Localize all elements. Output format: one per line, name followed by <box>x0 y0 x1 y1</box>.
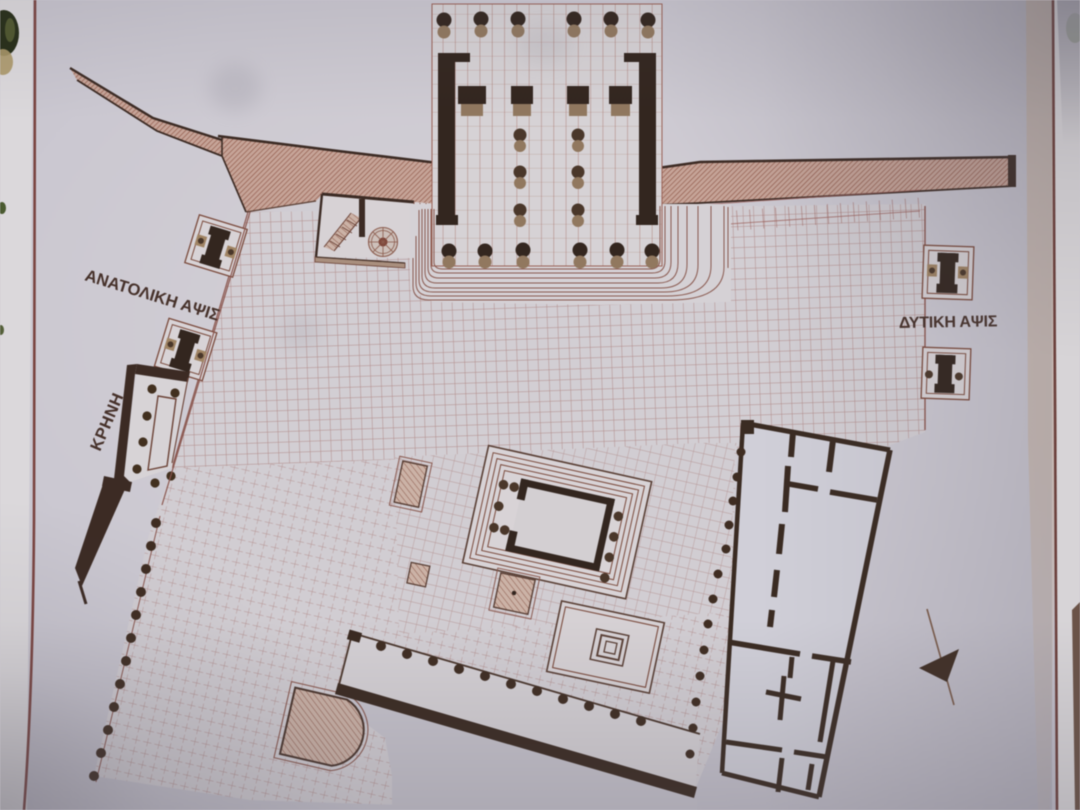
svg-text:ΔΥΤΙΚΗ ΑΨΙΣ: ΔΥΤΙΚΗ ΑΨΙΣ <box>899 313 998 332</box>
